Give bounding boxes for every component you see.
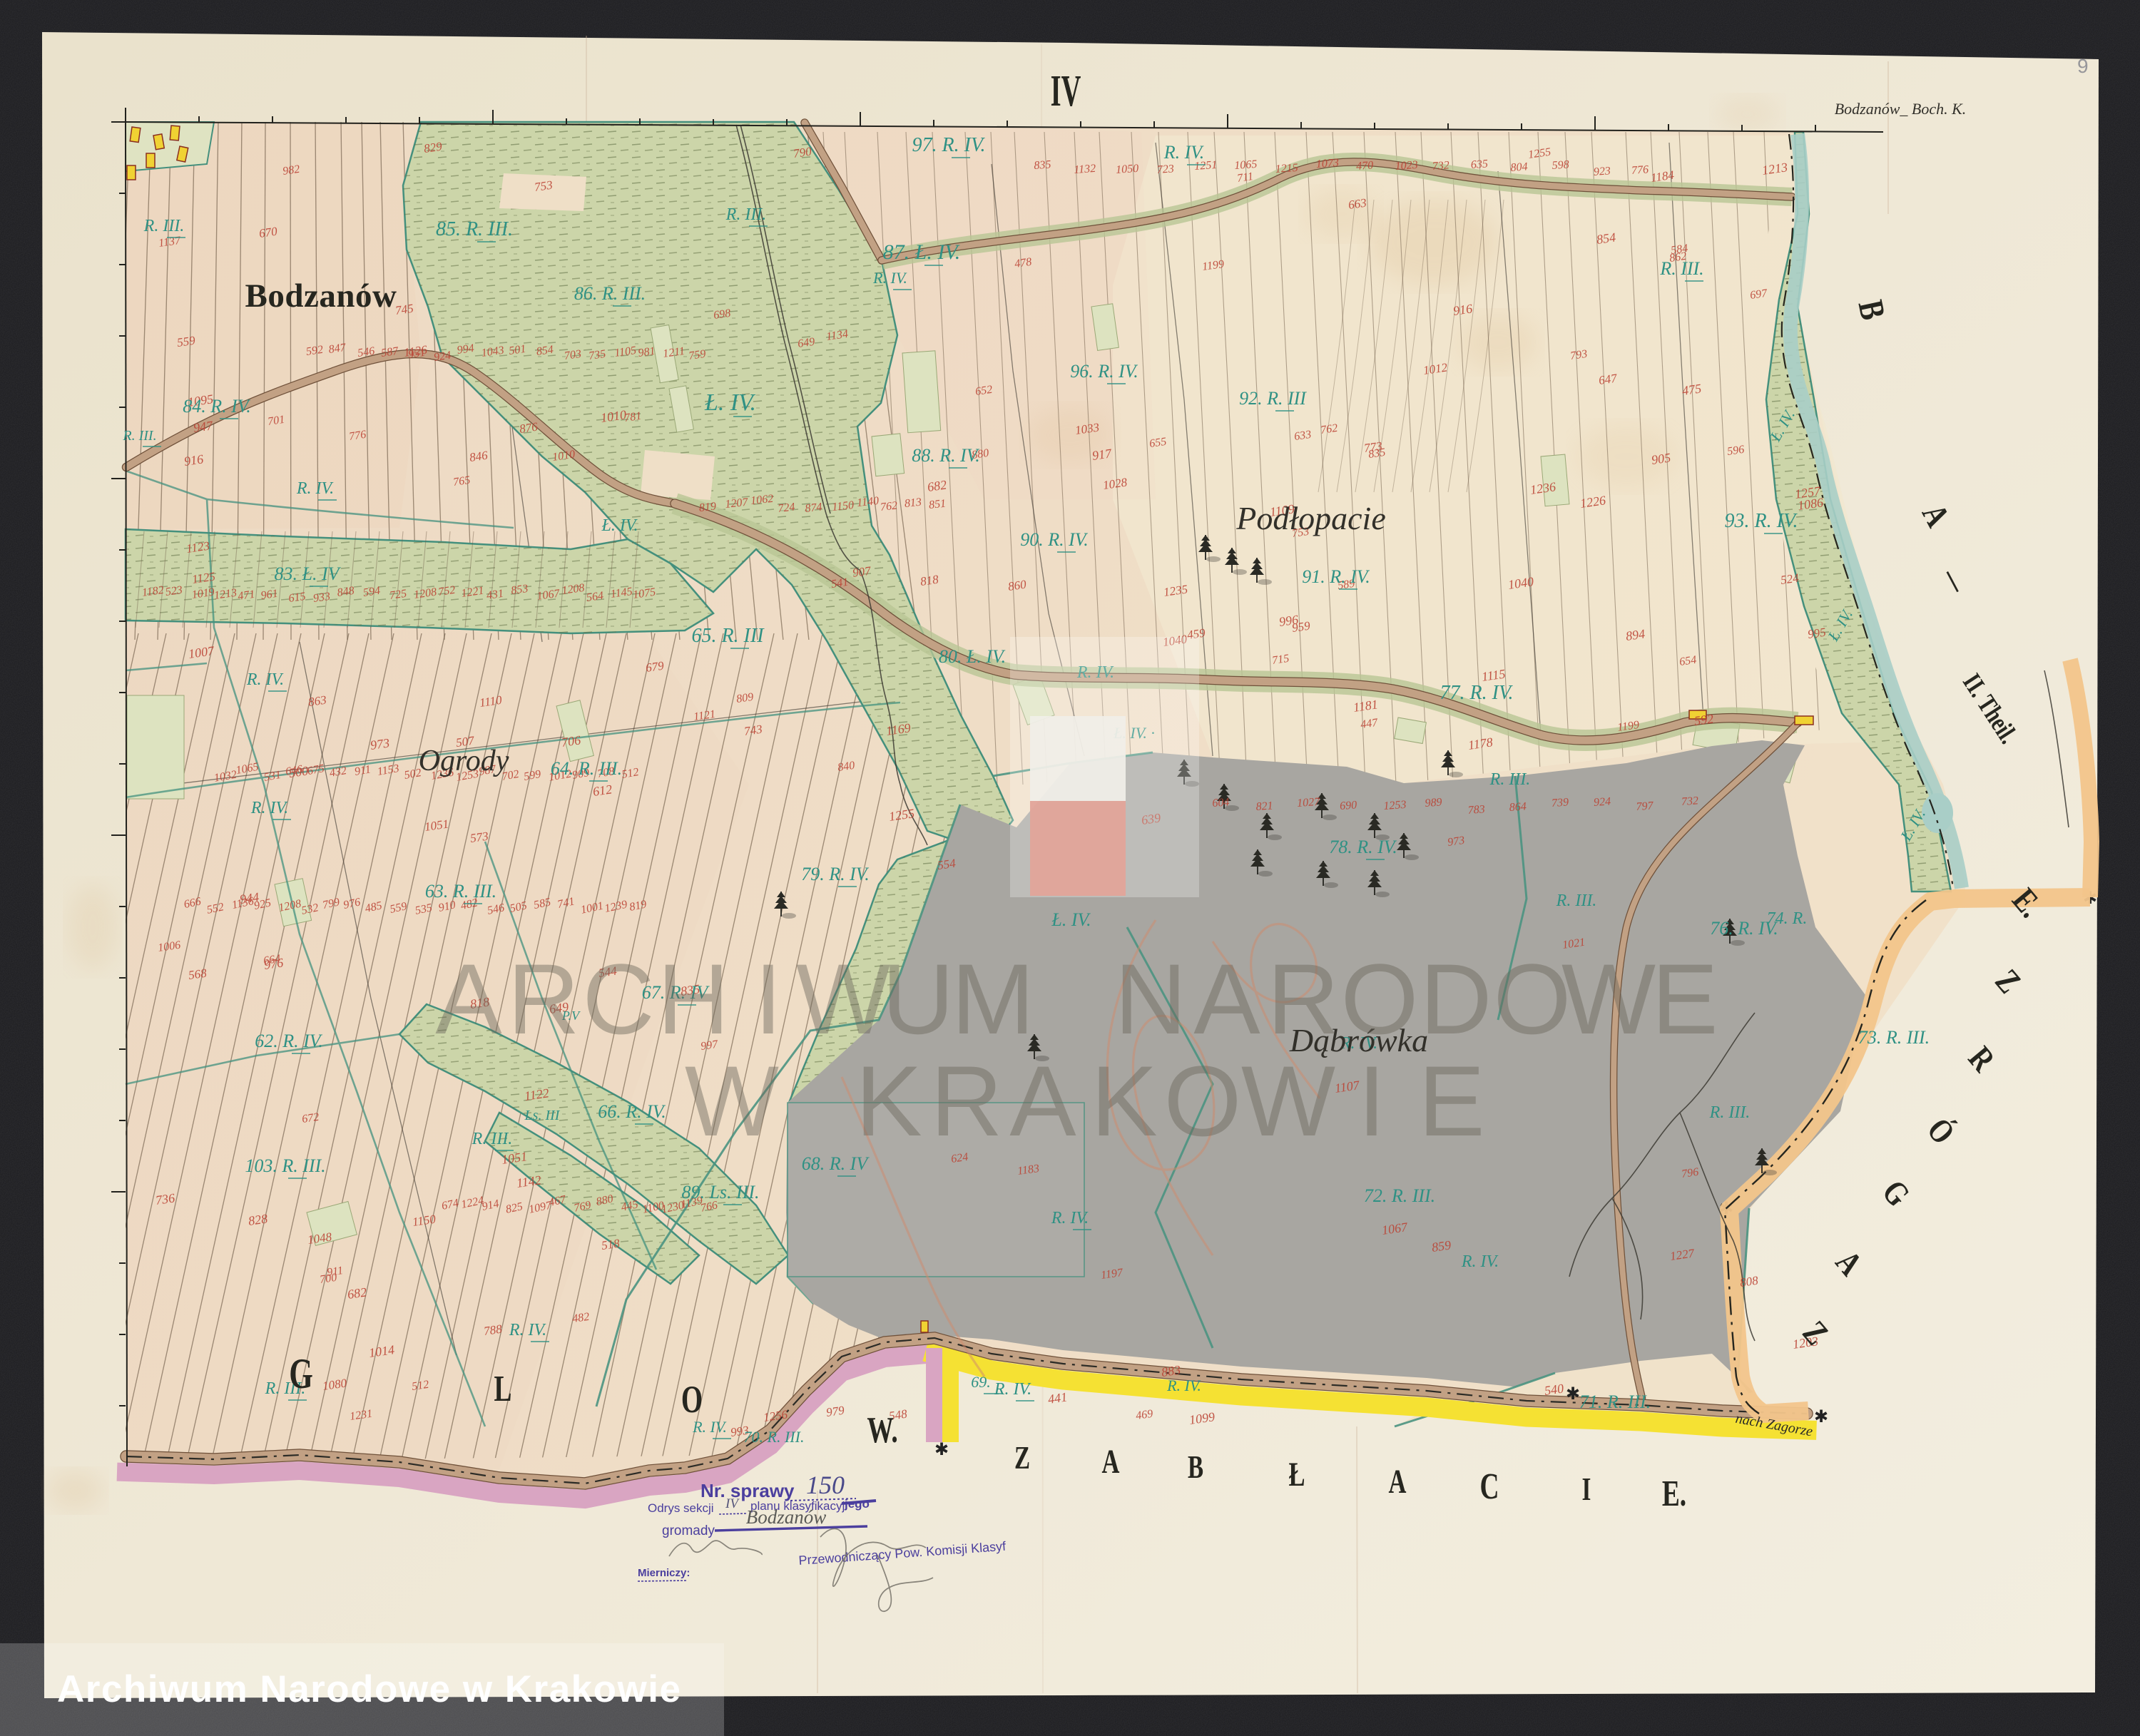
svg-text:O: O [1494, 943, 1571, 1055]
svg-text:813: 813 [904, 496, 922, 510]
svg-text:R. III.: R. III. [725, 205, 767, 224]
svg-text:Odrys sekcji: Odrys sekcji [648, 1501, 714, 1515]
svg-text:R. III.: R. III. [1659, 258, 1703, 279]
svg-text:Bodzanów: Bodzanów [245, 277, 397, 315]
svg-text:788: 788 [483, 1322, 503, 1338]
svg-text:Z: Z [1014, 1439, 1030, 1476]
svg-text:89. Ls. III.: 89. Ls. III. [681, 1182, 759, 1203]
svg-text:672: 672 [301, 1111, 320, 1125]
svg-text:E: E [1418, 1045, 1484, 1157]
svg-text:776: 776 [1631, 163, 1649, 177]
svg-text:759: 759 [688, 348, 706, 362]
svg-text:Archiwum Narodowe w Krakowie: Archiwum Narodowe w Krakowie [57, 1668, 681, 1710]
svg-text:711: 711 [1236, 170, 1254, 185]
svg-text:682: 682 [347, 1285, 368, 1302]
svg-text:804: 804 [1510, 160, 1528, 174]
svg-text:R. III.: R. III. [143, 217, 185, 235]
svg-text:568: 568 [188, 966, 208, 982]
svg-text:924: 924 [1594, 795, 1611, 809]
svg-text:973: 973 [370, 735, 391, 752]
svg-text:894: 894 [1625, 626, 1646, 643]
svg-text:512: 512 [411, 1379, 429, 1393]
svg-text:664: 664 [263, 953, 281, 967]
svg-text:652: 652 [974, 384, 993, 398]
svg-text:R. IV.: R. IV. [246, 670, 284, 689]
svg-text:G: G [289, 1350, 313, 1398]
svg-text:701: 701 [267, 414, 285, 428]
svg-text:✱: ✱ [934, 1441, 949, 1459]
svg-text:O: O [1164, 1045, 1242, 1157]
svg-text:447: 447 [1360, 717, 1379, 731]
svg-text:540: 540 [1544, 1381, 1565, 1398]
svg-text:Ł. IV.: Ł. IV. [601, 516, 638, 535]
svg-text:482: 482 [571, 1311, 590, 1325]
svg-text:809: 809 [735, 691, 754, 705]
svg-text:E: E [1651, 943, 1718, 1055]
svg-text:R. III.: R. III. [1489, 770, 1531, 789]
svg-text:A: A [435, 943, 502, 1055]
svg-text:1023: 1023 [1395, 159, 1418, 173]
svg-text:R. IV.: R. IV. [509, 1321, 546, 1339]
svg-text:743: 743 [743, 723, 763, 738]
svg-text:R: R [930, 1045, 1002, 1157]
svg-text:863: 863 [307, 693, 327, 709]
svg-text:765: 765 [452, 474, 471, 489]
svg-text:596: 596 [1726, 444, 1745, 458]
svg-text:1050: 1050 [1116, 163, 1139, 176]
svg-text:103. R. III.: 103. R. III. [245, 1155, 325, 1176]
svg-text:1140: 1140 [856, 495, 879, 509]
svg-text:471: 471 [237, 588, 255, 603]
svg-text:Mierniczy:: Mierniczy: [638, 1567, 690, 1579]
svg-text:835: 835 [1034, 158, 1051, 172]
svg-text:739: 739 [1551, 796, 1569, 810]
svg-text:808: 808 [1739, 1274, 1759, 1290]
svg-text:752: 752 [437, 584, 456, 598]
svg-text:654: 654 [1678, 654, 1697, 668]
svg-text:1027: 1027 [1297, 796, 1321, 810]
svg-text:735: 735 [588, 348, 606, 362]
svg-text:776: 776 [348, 429, 367, 443]
svg-text:859: 859 [1431, 1237, 1452, 1255]
svg-text:961: 961 [260, 588, 279, 602]
svg-text:854: 854 [536, 344, 554, 358]
svg-text:Bodzanów_ Boch. K.: Bodzanów_ Boch. K. [1835, 100, 1967, 118]
svg-text:431: 431 [486, 588, 504, 602]
svg-text:851: 851 [928, 498, 947, 511]
svg-text:663: 663 [1347, 196, 1367, 212]
svg-text:77. R. IV.: 77. R. IV. [1440, 682, 1514, 704]
svg-text:O: O [681, 1379, 703, 1421]
svg-text:I: I [1582, 1471, 1591, 1508]
svg-text:989: 989 [1425, 796, 1442, 810]
svg-text:518: 518 [601, 1237, 621, 1252]
svg-text:W: W [685, 1045, 779, 1157]
svg-text:R. III.: R. III. [472, 1130, 513, 1148]
svg-text:1065: 1065 [1234, 158, 1258, 172]
svg-text:951: 951 [407, 347, 426, 361]
svg-text:523: 523 [165, 584, 183, 598]
svg-text:79. R. IV.: 79. R. IV. [801, 864, 870, 884]
svg-text:829: 829 [423, 140, 443, 155]
svg-text:840: 840 [837, 760, 855, 774]
svg-text:732: 732 [1681, 795, 1698, 808]
svg-text:715: 715 [1271, 653, 1290, 667]
svg-text:604: 604 [1212, 796, 1230, 810]
svg-text:907: 907 [852, 563, 872, 580]
svg-text:649: 649 [797, 336, 815, 350]
svg-text:982: 982 [282, 163, 300, 178]
svg-text:R: R [507, 943, 579, 1055]
svg-text:66. R. IV.: 66. R. IV. [598, 1101, 666, 1122]
svg-text:933: 933 [312, 591, 331, 605]
svg-text:84. R. IV.: 84. R. IV. [183, 396, 251, 417]
svg-text:475: 475 [1681, 381, 1703, 398]
svg-text:88. R. IV.: 88. R. IV. [912, 445, 980, 466]
svg-text:W: W [1561, 943, 1656, 1055]
svg-text:587: 587 [380, 345, 399, 359]
svg-text:E.: E. [1662, 1473, 1686, 1513]
svg-text:91. R. IV.: 91. R. IV. [1302, 566, 1370, 587]
svg-text:846: 846 [469, 449, 489, 464]
svg-text:470: 470 [1356, 159, 1374, 173]
svg-text:698: 698 [713, 307, 731, 322]
svg-text:Bodzanów: Bodzanów [746, 1506, 827, 1528]
svg-text:Ł. IV.: Ł. IV. [1051, 909, 1091, 930]
svg-text:697: 697 [1749, 287, 1768, 302]
svg-text:917: 917 [1091, 446, 1114, 463]
svg-text:682: 682 [927, 477, 948, 494]
svg-text:762: 762 [1320, 422, 1338, 436]
svg-text:612: 612 [592, 782, 613, 799]
svg-text:H: H [657, 943, 729, 1055]
svg-text:Ł. IV.: Ł. IV. [704, 389, 756, 416]
svg-text:905: 905 [1651, 450, 1672, 467]
svg-text:995: 995 [1807, 626, 1827, 641]
svg-text:1062: 1062 [750, 493, 774, 507]
svg-text:R: R [1267, 943, 1339, 1055]
svg-text:I: I [1358, 1045, 1386, 1157]
svg-text:554: 554 [937, 857, 957, 872]
svg-text:864: 864 [1509, 800, 1527, 814]
svg-text:633: 633 [1293, 429, 1312, 443]
svg-text:916: 916 [183, 451, 205, 469]
svg-text:1253: 1253 [1383, 799, 1407, 812]
svg-text:✱: ✱ [1814, 1408, 1828, 1426]
svg-text:573: 573 [469, 829, 489, 845]
svg-text:R. IV.: R. IV. [1163, 142, 1205, 163]
svg-text:R. IV.: R. IV. [872, 269, 907, 287]
svg-text:647: 647 [1598, 371, 1619, 387]
svg-text:762: 762 [880, 500, 898, 514]
svg-text:71. R. III.: 71. R. III. [1579, 1392, 1651, 1412]
svg-text:O: O [1341, 943, 1419, 1055]
svg-text:97. R. IV.: 97. R. IV. [912, 134, 986, 156]
svg-text:L: L [494, 1368, 512, 1409]
svg-text:Ls. III: Ls. III [524, 1108, 561, 1123]
svg-text:gromady: gromady [662, 1523, 715, 1538]
svg-text:524: 524 [1780, 571, 1800, 587]
svg-text:B: B [1188, 1449, 1203, 1486]
svg-text:C: C [582, 943, 654, 1055]
svg-text:860: 860 [1007, 578, 1027, 593]
svg-text:996: 996 [1278, 612, 1300, 629]
svg-text:541: 541 [830, 576, 849, 591]
svg-text:C: C [1479, 1466, 1499, 1506]
svg-text:559: 559 [176, 334, 196, 349]
svg-text:70. R. III.: 70. R. III. [744, 1428, 805, 1446]
svg-text:76. R. IV.: 76. R. IV. [1710, 918, 1778, 939]
svg-text:A: A [1193, 943, 1260, 1055]
svg-text:R. III.: R. III. [1709, 1103, 1751, 1122]
svg-text:A: A [1102, 1444, 1120, 1481]
svg-text:1215: 1215 [1275, 162, 1298, 175]
svg-text:92. R. III: 92. R. III [1239, 388, 1307, 409]
svg-text:83. Ł. IV: 83. Ł. IV [275, 563, 342, 584]
svg-text:Ł: Ł [1288, 1456, 1305, 1494]
svg-text:64. R. III.: 64. R. III. [551, 758, 622, 779]
svg-text:R. IV.: R. IV. [1461, 1252, 1499, 1271]
svg-text:69.: 69. [971, 1373, 991, 1391]
svg-text:87. Ł. IV.: 87. Ł. IV. [883, 240, 961, 264]
svg-text:790: 790 [793, 145, 812, 160]
svg-text:85. R. III.: 85. R. III. [436, 218, 513, 240]
svg-text:A: A [1389, 1464, 1407, 1501]
svg-text:K: K [855, 1045, 922, 1157]
svg-text:821: 821 [1255, 800, 1273, 813]
svg-text:783: 783 [1467, 803, 1485, 817]
svg-text:W: W [796, 943, 890, 1055]
svg-text:745: 745 [394, 302, 414, 317]
svg-text:876: 876 [519, 420, 539, 436]
svg-text:A: A [1009, 1045, 1076, 1157]
svg-text:924: 924 [433, 349, 452, 364]
svg-text:78. R. IV.: 78. R. IV. [1329, 837, 1397, 857]
svg-text:D: D [1420, 943, 1492, 1055]
svg-text:✱: ✱ [1566, 1385, 1580, 1404]
svg-text:R. III.: R. III. [1556, 892, 1597, 910]
svg-text:796: 796 [1681, 1166, 1699, 1180]
svg-text:R. IV.: R. IV. [1051, 1209, 1089, 1227]
svg-text:724: 724 [778, 501, 796, 515]
svg-text:1132: 1132 [1074, 163, 1096, 176]
svg-text:62. R. IV.: 62. R. IV. [255, 1031, 323, 1051]
svg-text:N: N [1114, 943, 1186, 1055]
svg-text:723: 723 [1156, 163, 1174, 176]
svg-text:797: 797 [1636, 800, 1654, 813]
svg-text:670: 670 [258, 225, 278, 240]
svg-text:592: 592 [1693, 711, 1715, 728]
svg-text:W.: W. [867, 1409, 897, 1450]
svg-text:73. R. III.: 73. R. III. [1858, 1027, 1930, 1048]
svg-text:R. IV.: R. IV. [296, 479, 334, 498]
svg-text:R. IV.: R. IV. [994, 1380, 1031, 1399]
svg-text:Ogrody: Ogrody [419, 745, 509, 777]
svg-text:854: 854 [1596, 230, 1617, 247]
svg-text:IV: IV [1051, 67, 1081, 116]
svg-text:781: 781 [623, 410, 642, 424]
svg-text:981: 981 [637, 345, 656, 359]
svg-text:K: K [1091, 1045, 1157, 1157]
svg-text:65. R. III: 65. R. III [691, 625, 765, 647]
svg-text:773: 773 [1363, 439, 1383, 455]
svg-text:994: 994 [457, 342, 475, 357]
svg-text:M: M [952, 943, 1035, 1055]
svg-text:Nr. sprawy: Nr. sprawy [700, 1480, 795, 1501]
svg-text:441: 441 [1047, 1389, 1069, 1406]
svg-text:469: 469 [1135, 1408, 1153, 1422]
svg-text:916: 916 [1452, 301, 1474, 318]
svg-text:U: U [882, 943, 954, 1055]
svg-text:819: 819 [698, 501, 717, 514]
svg-text:847: 847 [328, 342, 347, 356]
svg-text:IV: IV [725, 1496, 740, 1511]
svg-text:706: 706 [561, 732, 582, 750]
svg-text:615: 615 [287, 591, 306, 605]
svg-text:598: 598 [1551, 158, 1569, 172]
svg-text:R. IV.: R. IV. [1166, 1377, 1201, 1394]
svg-text:793: 793 [1569, 348, 1588, 362]
svg-text:93. R. IV.: 93. R. IV. [1725, 510, 1798, 532]
svg-text:1073: 1073 [1315, 157, 1339, 170]
svg-text:9: 9 [2077, 55, 2089, 77]
svg-text:546: 546 [357, 345, 375, 359]
svg-text:923: 923 [1593, 165, 1611, 178]
svg-text:973: 973 [1447, 834, 1465, 849]
svg-text:W: W [1241, 1045, 1335, 1157]
svg-text:703: 703 [564, 348, 582, 362]
svg-text:848: 848 [337, 585, 355, 599]
svg-text:63. R. III.: 63. R. III. [425, 881, 496, 902]
svg-text:90. R. IV.: 90. R. IV. [1020, 529, 1089, 550]
svg-text:1207: 1207 [725, 496, 750, 511]
svg-text:732: 732 [1432, 159, 1449, 173]
svg-text:753: 753 [534, 178, 554, 194]
svg-text:594: 594 [362, 585, 381, 599]
svg-text:979: 979 [825, 1404, 845, 1419]
svg-text:635: 635 [1470, 158, 1488, 171]
svg-text:478: 478 [1014, 256, 1032, 270]
svg-text:501: 501 [508, 343, 526, 357]
svg-text:584: 584 [1670, 242, 1688, 257]
svg-text:853: 853 [510, 583, 529, 597]
svg-text:96. R. IV.: 96. R. IV. [1070, 361, 1138, 382]
svg-text:655: 655 [1148, 436, 1167, 450]
svg-text:R. III.: R. III. [122, 428, 156, 444]
svg-text:564: 564 [586, 590, 604, 604]
svg-text:150: 150 [806, 1471, 845, 1499]
svg-text:Podłopacie: Podłopacie [1235, 500, 1386, 536]
svg-text:86. R. III.: 86. R. III. [574, 283, 646, 304]
svg-text:818: 818 [919, 573, 939, 588]
svg-text:690: 690 [1340, 799, 1357, 812]
svg-text:80. Ł. IV.: 80. Ł. IV. [939, 646, 1006, 667]
svg-text:592: 592 [305, 344, 324, 358]
svg-text:1150: 1150 [832, 499, 855, 514]
svg-text:I: I [755, 943, 783, 1055]
svg-text:725: 725 [389, 588, 407, 602]
svg-text:72. R. III.: 72. R. III. [1364, 1185, 1435, 1206]
svg-text:736: 736 [155, 1190, 176, 1207]
svg-text:874: 874 [805, 501, 823, 515]
svg-text:911: 911 [326, 1265, 344, 1279]
svg-text:679: 679 [645, 659, 665, 675]
svg-text:947: 947 [193, 418, 215, 435]
svg-text:R. IV.: R. IV. [250, 799, 288, 817]
svg-text:828: 828 [248, 1211, 269, 1228]
